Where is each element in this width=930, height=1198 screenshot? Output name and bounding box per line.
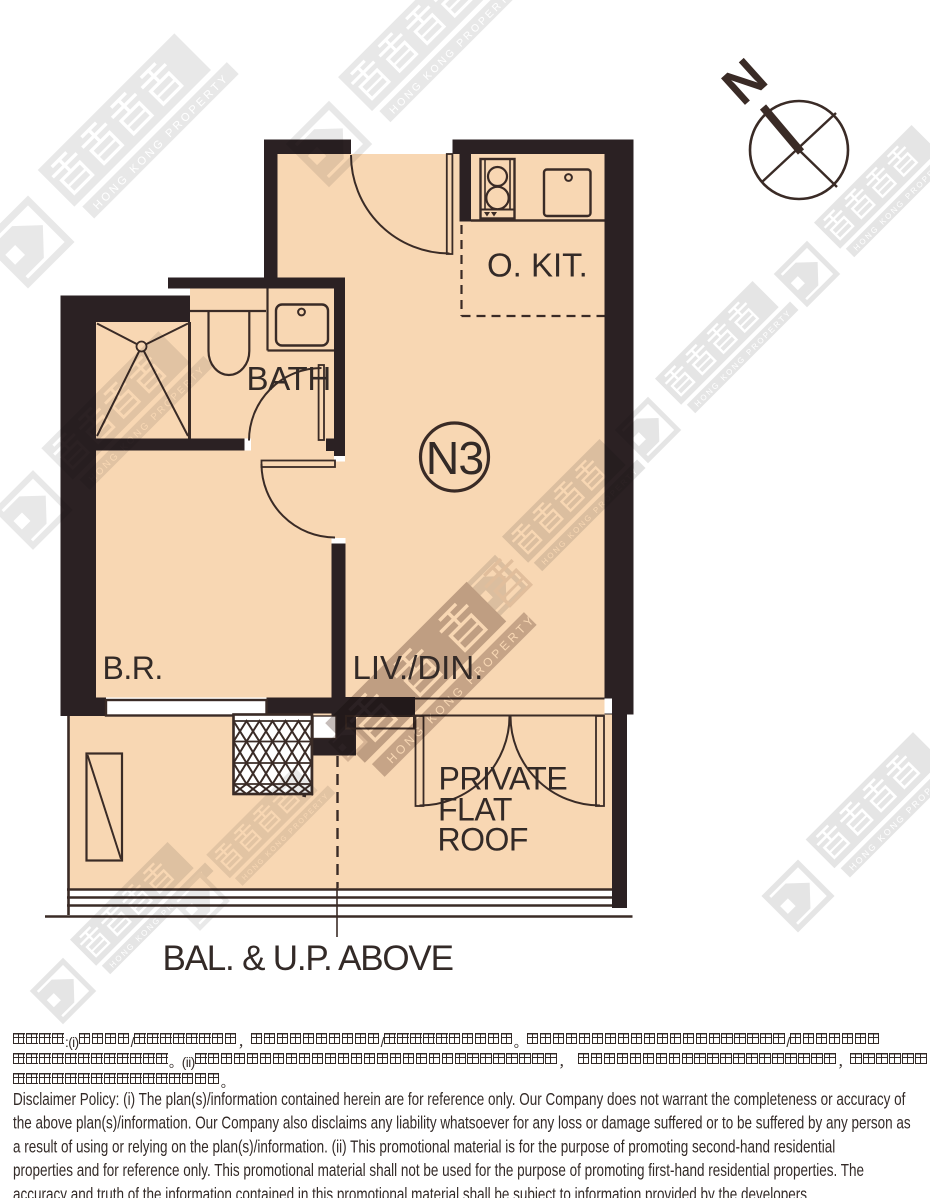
svg-text:accuracy and truth of the info: accuracy and truth of the information co…: [13, 1186, 811, 1198]
svg-text:B.R.: B.R.: [103, 650, 163, 686]
svg-text:O. KIT.: O. KIT.: [487, 247, 588, 284]
svg-text:N3: N3: [426, 432, 483, 484]
svg-text:properties and for reference o: properties and for reference only. This …: [13, 1162, 864, 1181]
svg-text:a result of using or relying o: a result of using or relying on the plan…: [13, 1138, 835, 1157]
svg-text:N: N: [712, 48, 779, 116]
svg-text:LIV./DIN.: LIV./DIN.: [353, 649, 484, 686]
svg-text:BAL. & U.P. ABOVE: BAL. & U.P. ABOVE: [163, 939, 453, 978]
svg-text:BATH: BATH: [247, 360, 331, 397]
svg-text:ROOF: ROOF: [438, 822, 528, 858]
svg-text:Disclaimer Policy: (i) The pla: Disclaimer Policy: (i) The plan(s)/infor…: [13, 1090, 906, 1109]
svg-text:the above plan(s)/information.: the above plan(s)/information. Our Compa…: [13, 1114, 911, 1133]
